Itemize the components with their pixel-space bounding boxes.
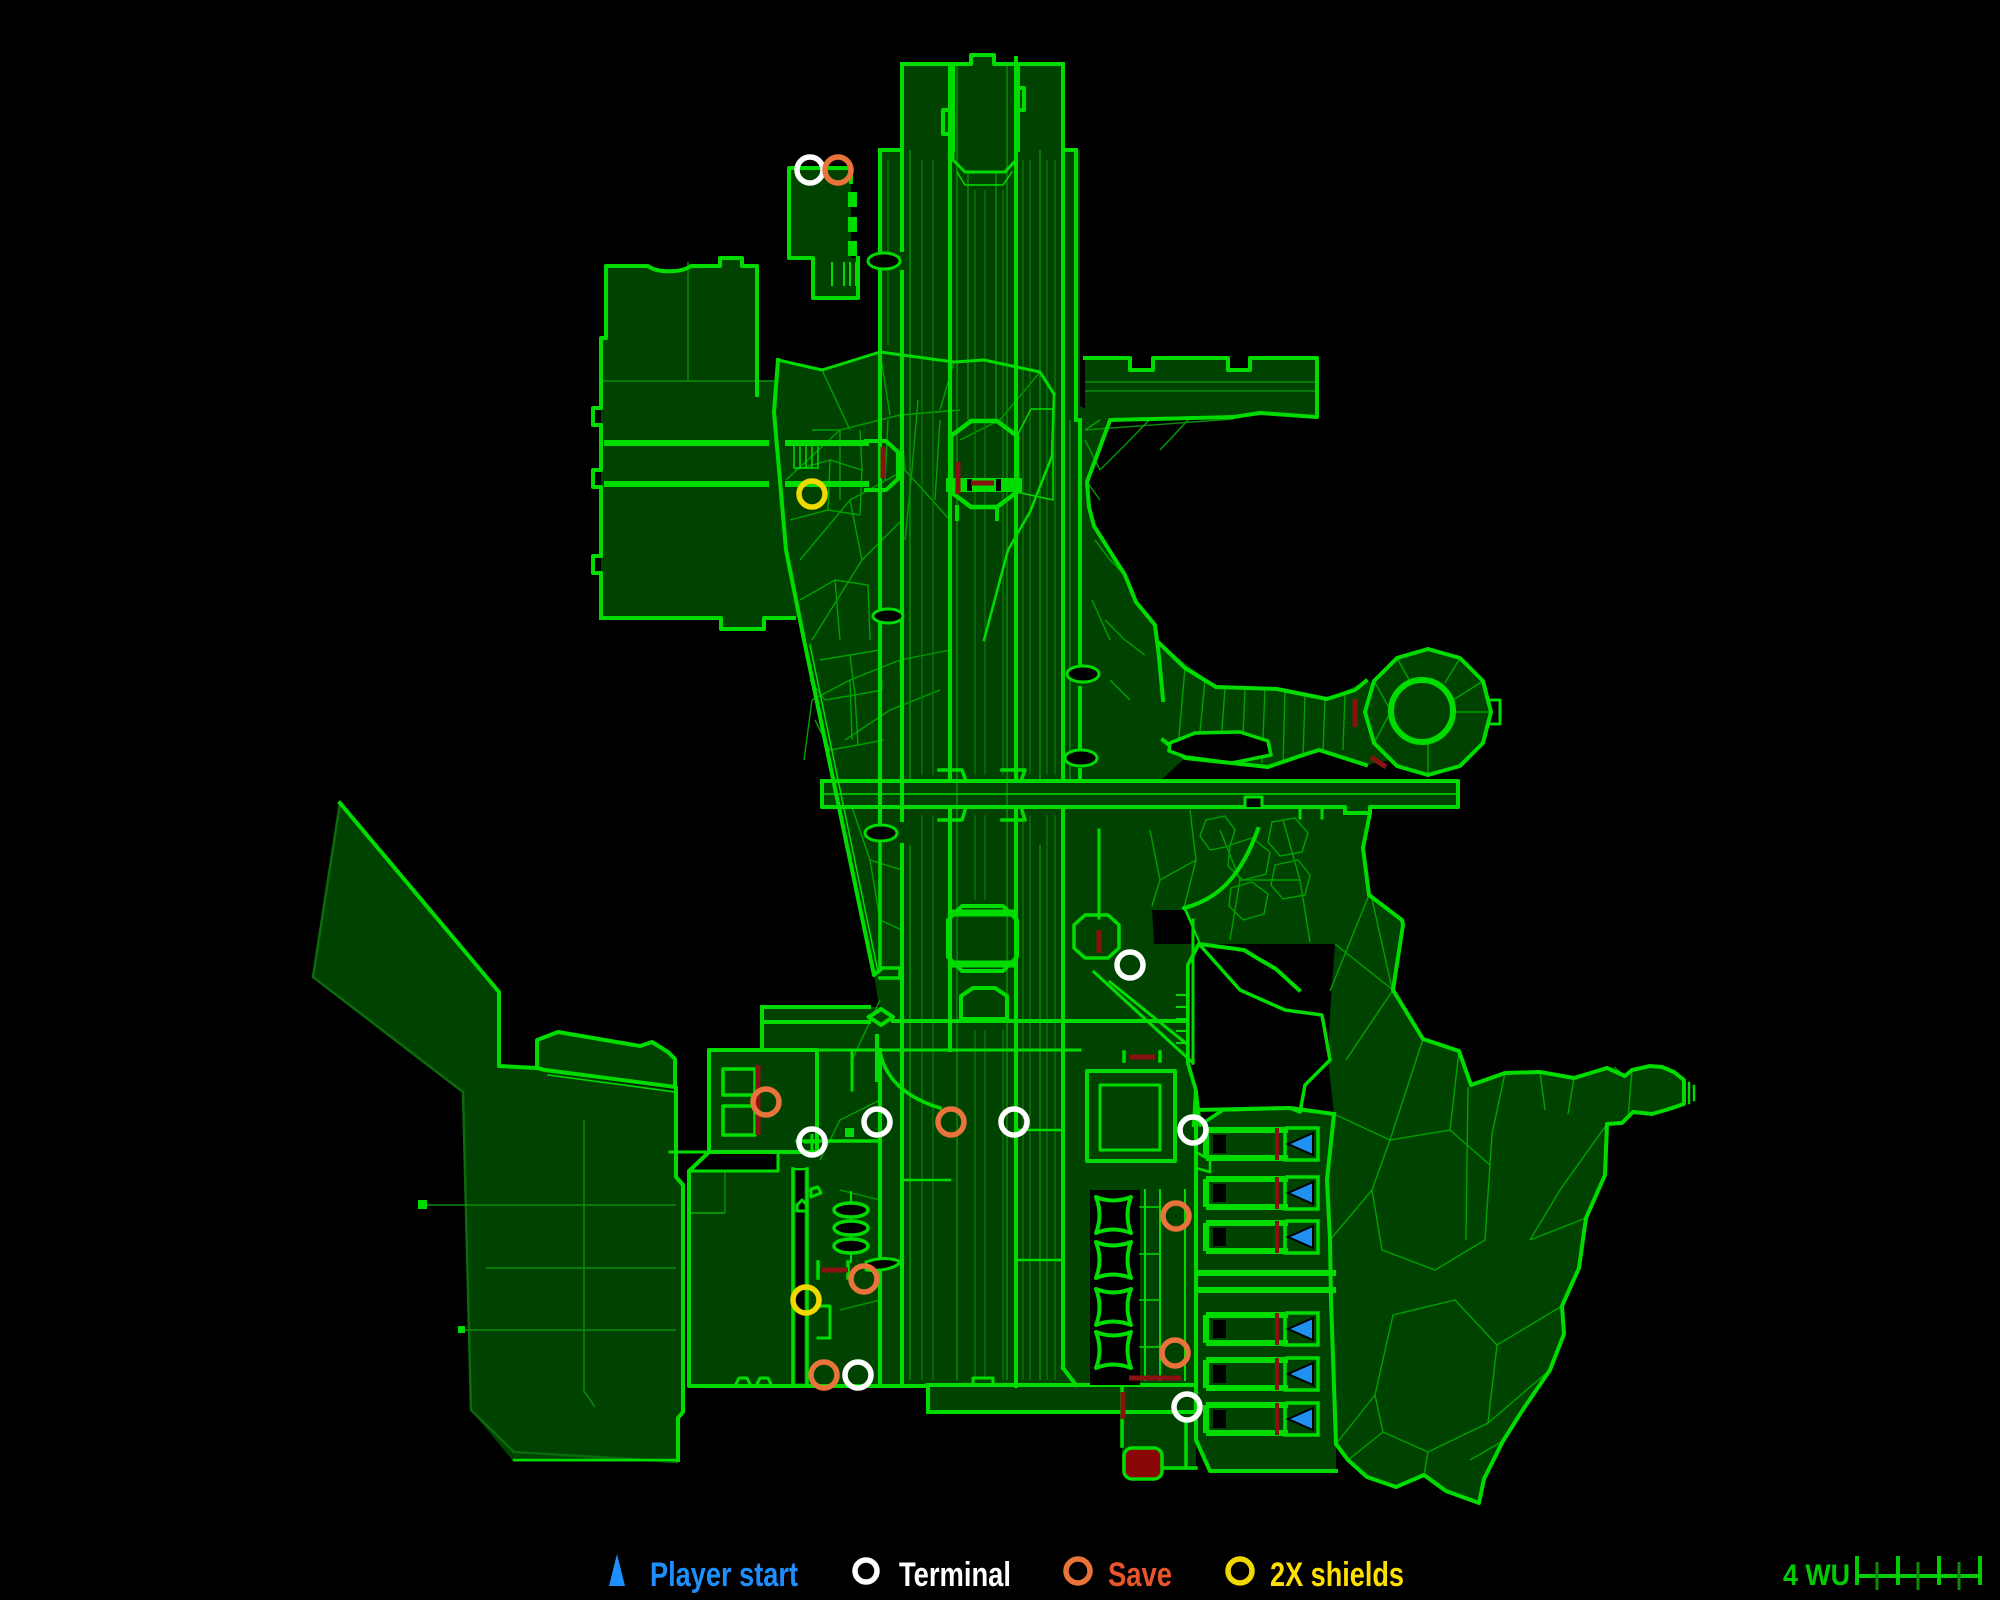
svg-text:Terminal: Terminal — [899, 1556, 1011, 1594]
svg-text:4 WU: 4 WU — [1783, 1559, 1850, 1592]
svg-text:2X shields: 2X shields — [1270, 1556, 1404, 1594]
svg-text:Save: Save — [1108, 1556, 1172, 1594]
svg-text:Player start: Player start — [650, 1556, 798, 1594]
